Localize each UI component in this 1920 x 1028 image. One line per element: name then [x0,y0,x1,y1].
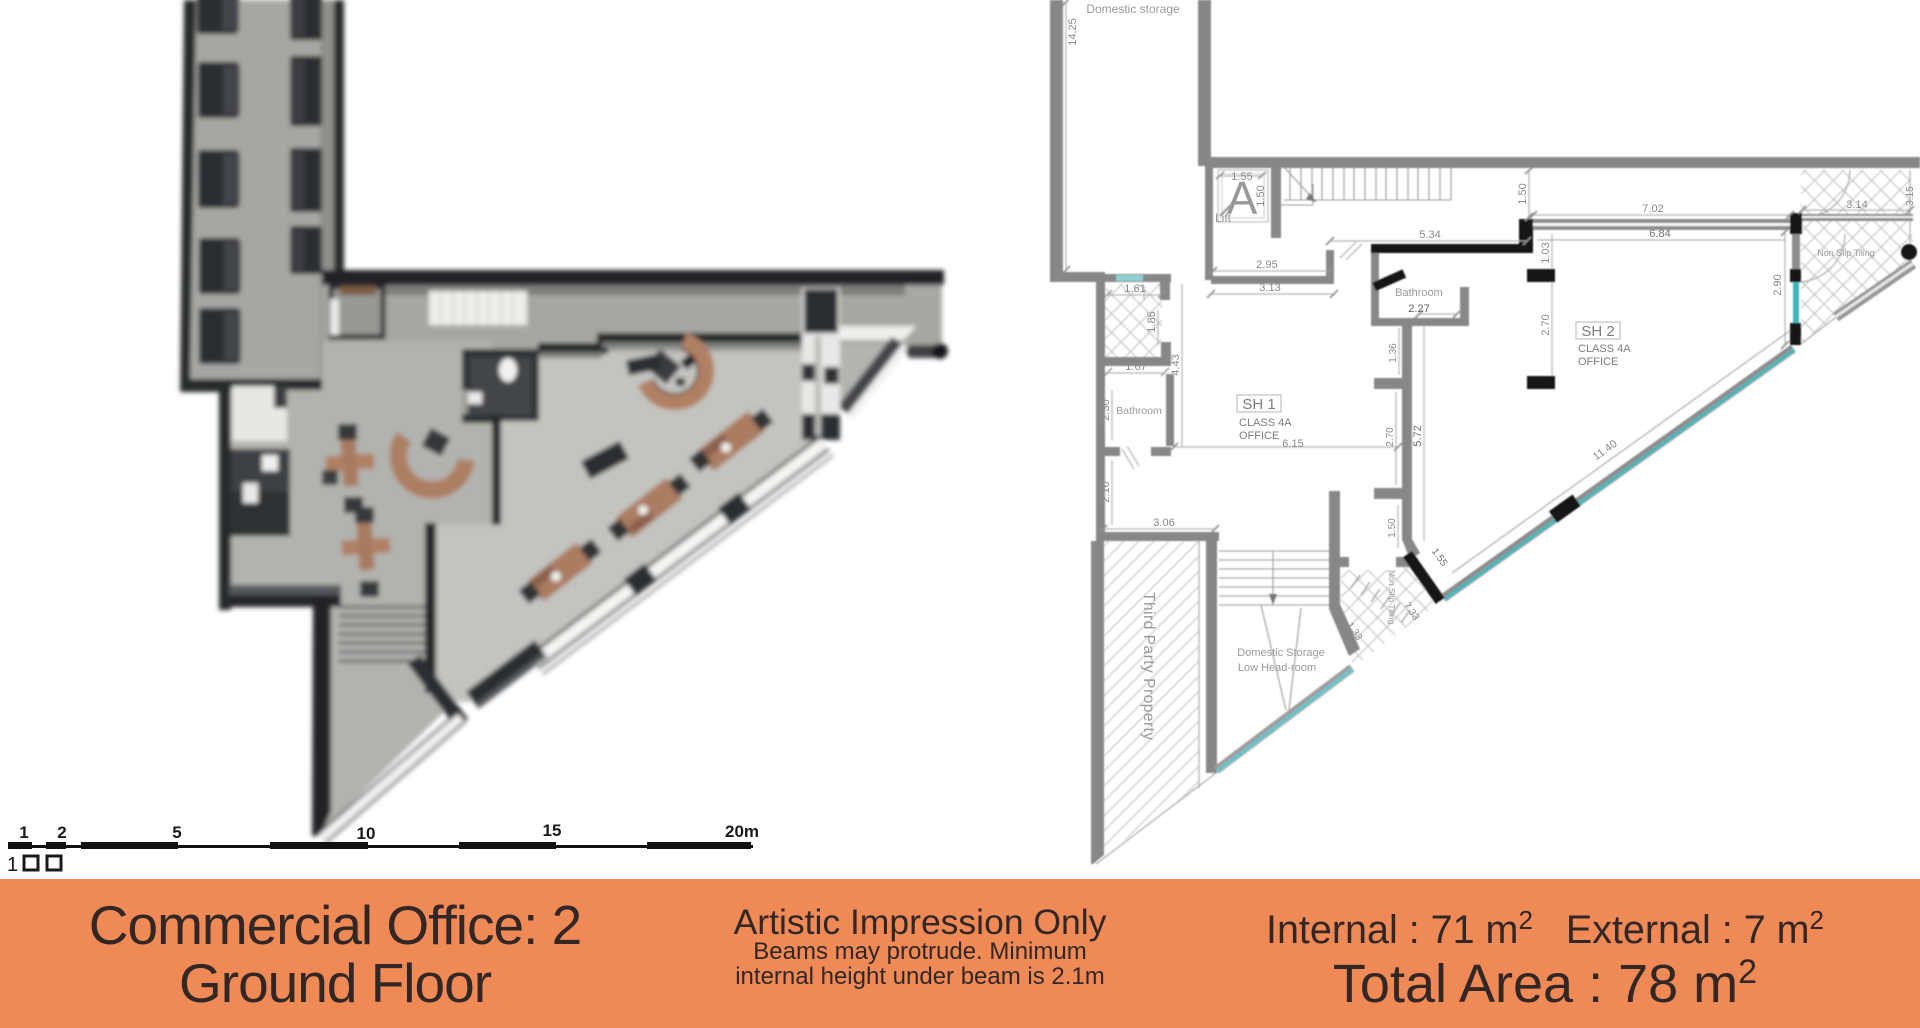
svg-text:4.43: 4.43 [1170,354,1182,375]
svg-text:6.15: 6.15 [1282,438,1303,450]
svg-text:1.61: 1.61 [1124,283,1145,295]
svg-text:3.15: 3.15 [1905,186,1916,206]
svg-text:Bathroom: Bathroom [1116,405,1162,417]
svg-text:OFFICE: OFFICE [1239,430,1279,442]
svg-text:14.25: 14.25 [1067,18,1079,46]
svg-text:SH 2: SH 2 [1581,323,1614,340]
svg-text:10: 10 [357,824,376,843]
svg-text:3.13: 3.13 [1259,282,1280,294]
svg-text:Third Party Property: Third Party Property [1140,592,1157,741]
svg-text:2.70: 2.70 [1385,427,1396,447]
svg-text:CLASS 4A: CLASS 4A [1578,343,1631,355]
svg-text:11.40: 11.40 [1591,438,1620,463]
svg-text:Low Head-room: Low Head-room [1238,662,1316,674]
svg-text:1.67: 1.67 [1125,361,1146,373]
svg-text:2.10: 2.10 [1100,481,1112,502]
svg-text:15: 15 [543,821,562,840]
svg-text:3.14: 3.14 [1846,199,1867,211]
svg-text:Lift: Lift [1215,211,1232,225]
svg-text:5: 5 [172,823,181,842]
svg-text:2.27: 2.27 [1408,303,1429,315]
svg-text:2: 2 [57,823,66,842]
svg-text:7.02: 7.02 [1642,203,1663,215]
svg-text:2.90: 2.90 [1772,274,1784,295]
svg-text:1.55: 1.55 [1429,546,1449,569]
svg-text:1.50: 1.50 [1517,183,1529,204]
svg-text:CLASS 4A: CLASS 4A [1239,417,1292,429]
svg-text:3.06: 3.06 [1153,517,1174,529]
svg-text:1: 1 [19,823,28,842]
svg-text:1.50: 1.50 [1387,518,1398,538]
svg-text:20m: 20m [725,822,759,841]
svg-text:2.30: 2.30 [1100,399,1112,420]
svg-text:1.03: 1.03 [1540,242,1552,263]
svg-text:1.50: 1.50 [1255,185,1267,206]
svg-text:2.95: 2.95 [1256,259,1277,271]
svg-text:1: 1 [7,854,18,876]
svg-text:6.84: 6.84 [1649,228,1670,240]
svg-text:Domestic Storage: Domestic Storage [1237,647,1324,659]
svg-text:Non Slip Tiling: Non Slip Tiling [1387,570,1397,625]
svg-text:5.34: 5.34 [1419,229,1440,241]
svg-text:1.55: 1.55 [1231,171,1252,183]
svg-text:Bathroom: Bathroom [1395,287,1443,299]
svg-text:5.72: 5.72 [1412,425,1424,446]
svg-text:Non Slip Tiling: Non Slip Tiling [1817,248,1875,258]
svg-text:2.70: 2.70 [1540,314,1552,335]
svg-text:1.85: 1.85 [1146,311,1158,332]
svg-text:SH 1: SH 1 [1242,396,1275,413]
svg-text:1.36: 1.36 [1388,343,1399,363]
svg-text:OFFICE: OFFICE [1578,356,1618,368]
svg-text:Domestic storage: Domestic storage [1086,2,1180,16]
